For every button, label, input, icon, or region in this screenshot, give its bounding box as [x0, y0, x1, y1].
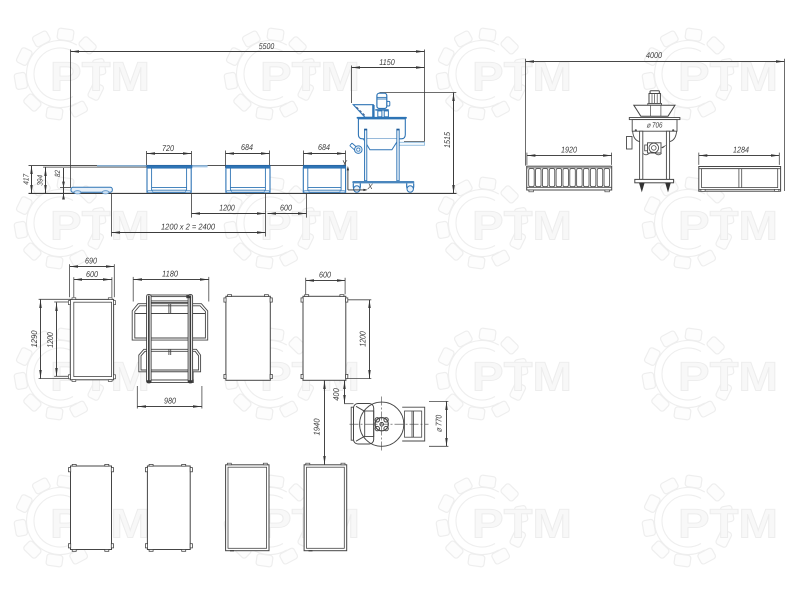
svg-text:1200: 1200 — [45, 332, 55, 348]
svg-text:1200: 1200 — [358, 331, 368, 347]
svg-text:720: 720 — [162, 143, 174, 153]
svg-text:980: 980 — [164, 396, 176, 406]
svg-text:1200 x 2 = 2400: 1200 x 2 = 2400 — [161, 221, 215, 231]
svg-text:X: X — [367, 182, 374, 191]
svg-text:1290: 1290 — [29, 330, 39, 347]
svg-text:600: 600 — [280, 203, 292, 213]
svg-text:⌀ 706: ⌀ 706 — [647, 120, 664, 129]
svg-text:684: 684 — [241, 142, 253, 152]
svg-text:5500: 5500 — [259, 41, 275, 51]
svg-text:1150: 1150 — [379, 57, 395, 67]
svg-text:684: 684 — [318, 142, 330, 152]
svg-text:690: 690 — [85, 256, 97, 266]
svg-text:600: 600 — [319, 269, 331, 279]
svg-text:82: 82 — [53, 169, 62, 177]
svg-text:⌀ 770: ⌀ 770 — [433, 414, 443, 432]
svg-text:1515: 1515 — [442, 132, 452, 148]
svg-text:1940: 1940 — [312, 418, 322, 435]
svg-text:394: 394 — [36, 175, 45, 186]
svg-text:4000: 4000 — [646, 50, 662, 60]
svg-text:400: 400 — [331, 388, 341, 401]
svg-text:600: 600 — [86, 269, 98, 279]
svg-text:1284: 1284 — [733, 144, 749, 154]
svg-text:1180: 1180 — [162, 268, 178, 278]
svg-text:1920: 1920 — [561, 144, 577, 154]
svg-text:1200: 1200 — [219, 203, 235, 213]
svg-text:417: 417 — [22, 173, 31, 185]
